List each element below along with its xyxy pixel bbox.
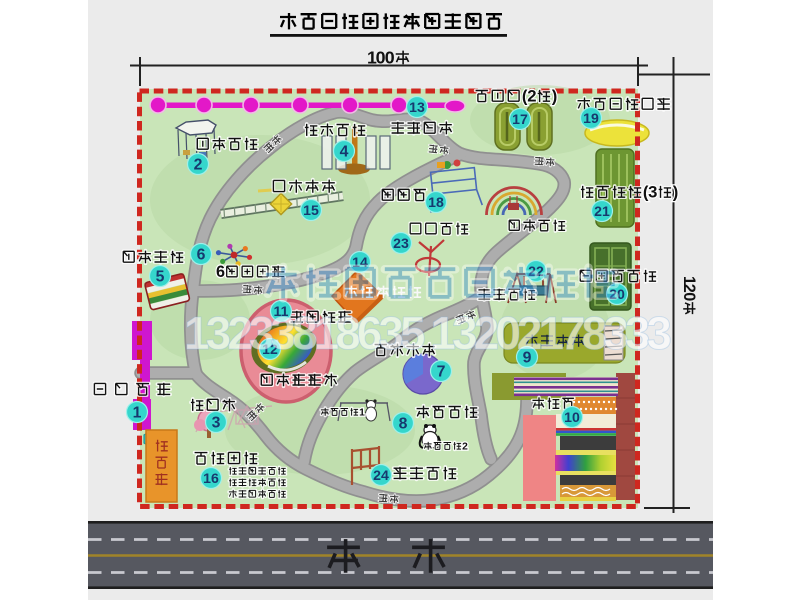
svg-text:6: 6 bbox=[197, 247, 206, 264]
svg-text:7: 7 bbox=[437, 364, 446, 381]
svg-text:4: 4 bbox=[340, 144, 349, 161]
svg-text:19: 19 bbox=[583, 110, 599, 126]
svg-text:2: 2 bbox=[527, 87, 536, 106]
svg-text:1: 1 bbox=[133, 405, 142, 422]
svg-text:15: 15 bbox=[303, 202, 319, 218]
svg-text:24: 24 bbox=[373, 467, 389, 483]
svg-text:6: 6 bbox=[216, 263, 225, 281]
svg-text:10: 10 bbox=[564, 409, 580, 425]
svg-text:21: 21 bbox=[594, 203, 610, 219]
svg-text:18: 18 bbox=[428, 194, 444, 210]
svg-text:17: 17 bbox=[512, 111, 528, 127]
svg-text:0: 0 bbox=[680, 292, 698, 301]
svg-text:0: 0 bbox=[385, 48, 395, 68]
svg-text:5: 5 bbox=[156, 269, 165, 286]
svg-text:3: 3 bbox=[212, 415, 221, 432]
svg-text:2: 2 bbox=[462, 441, 468, 452]
svg-text:): ) bbox=[673, 183, 679, 202]
svg-text:16: 16 bbox=[203, 470, 219, 486]
svg-text:13233818635 13202178333: 13233818635 13202178333 bbox=[184, 307, 672, 359]
svg-text:13: 13 bbox=[409, 99, 425, 115]
svg-text:23: 23 bbox=[393, 235, 409, 251]
svg-text:2: 2 bbox=[194, 157, 203, 174]
svg-text:): ) bbox=[552, 87, 558, 106]
svg-text:8: 8 bbox=[399, 416, 408, 433]
svg-text:1: 1 bbox=[359, 407, 365, 418]
svg-text:3: 3 bbox=[648, 183, 657, 202]
